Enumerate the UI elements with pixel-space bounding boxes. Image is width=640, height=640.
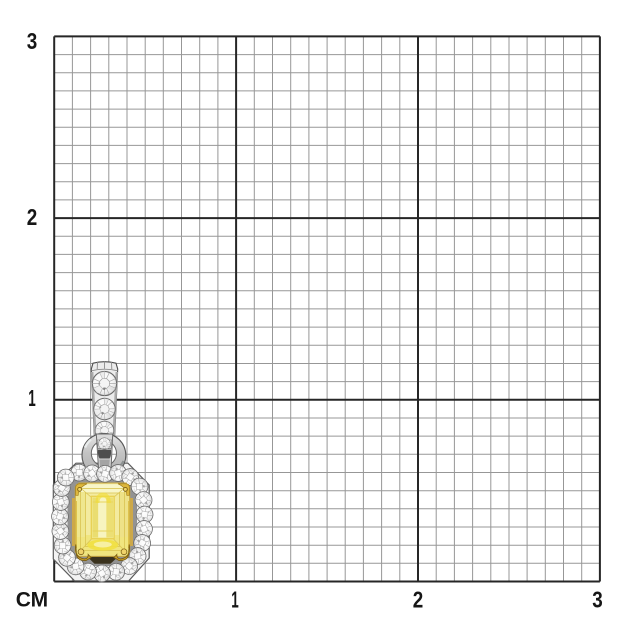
svg-text:3: 3	[27, 28, 38, 54]
svg-text:2: 2	[27, 204, 38, 230]
svg-text:3: 3	[592, 587, 603, 613]
svg-text:1: 1	[28, 385, 36, 411]
svg-text:2: 2	[413, 587, 424, 613]
svg-text:1: 1	[231, 587, 239, 613]
svg-text:СМ: СМ	[16, 589, 48, 612]
